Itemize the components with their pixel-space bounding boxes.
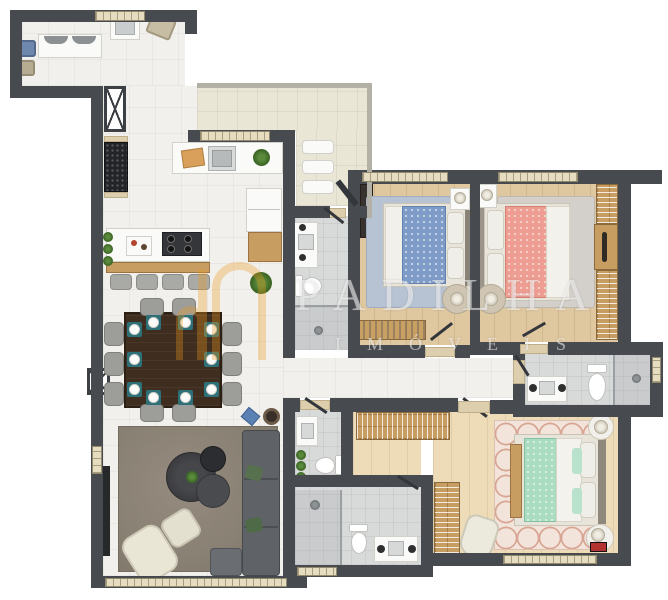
dining-chair-left-3: [104, 382, 124, 406]
floor-plan: PADILHA IMÓVEIS: [0, 0, 668, 600]
bedroom2-window: [498, 172, 578, 182]
hall-bench-2: [302, 160, 334, 174]
kitchen-shelf-plant-2: [103, 244, 113, 254]
kitchen-shelf-plant-1: [103, 232, 113, 242]
bath1-sink: [298, 234, 314, 250]
bath2-window: [652, 357, 661, 383]
wall-bath2-bottom: [513, 405, 663, 417]
wall-laundry-right: [185, 10, 197, 34]
bath2-accessory-2: [558, 384, 566, 392]
bed3-lamp-top: [594, 420, 608, 434]
bed2-pillow-1: [487, 210, 504, 250]
wc-plant-2: [296, 461, 306, 471]
watermark-subtitle: IMÓVEIS: [335, 334, 592, 355]
master-window: [503, 555, 597, 564]
cooktop-burner-1: [167, 235, 175, 243]
closet-wardrobe-top: [356, 412, 450, 440]
suitebath-sink: [388, 541, 404, 556]
wall-suitebath-right: [421, 475, 433, 577]
terrace-railing-right: [367, 83, 372, 218]
bedroom2-wardrobe-top: [596, 184, 618, 224]
wall-master-top-mid: [490, 400, 515, 414]
dining-chair-right-3: [222, 382, 242, 406]
coffee-table-mid: [196, 474, 230, 508]
bath2-toilet: [585, 364, 609, 404]
logo-arch-large: [212, 262, 266, 360]
plate: [148, 317, 159, 328]
tall-dark-cabinet: [104, 142, 128, 192]
master-door-sill: [458, 401, 490, 413]
suitebath-window: [297, 567, 337, 576]
suitebath-shower-glass: [340, 490, 342, 565]
kitchen-serving-tray: [126, 236, 152, 256]
suitebath-accessory-1: [377, 545, 385, 553]
hallway-floor: [283, 358, 513, 398]
kitchen-plant: [253, 149, 270, 166]
plate: [129, 384, 140, 395]
living-side-window: [92, 446, 102, 474]
dining-chair-top-1: [140, 298, 164, 316]
plate: [148, 392, 159, 403]
bath2-shower-glass: [613, 354, 615, 405]
bed3-foot-bench: [510, 444, 522, 518]
dining-chair-bottom-2: [172, 404, 196, 422]
bed3-lamp-bottom: [591, 528, 605, 542]
bed2-lamp-top: [481, 189, 493, 201]
bed3-pillow-2: [580, 482, 596, 518]
wall-laundry-bottom: [10, 86, 103, 98]
dining-chair-bottom-1: [140, 404, 164, 422]
bath1-shower-head: [314, 326, 323, 335]
plate: [129, 324, 140, 335]
suitebath-toilet: [348, 524, 370, 556]
watermark-title: PADILHA: [295, 268, 605, 321]
kitchen-cutting-board: [181, 148, 205, 169]
bar-stool-1: [110, 274, 132, 290]
tray-food-dark: [141, 244, 147, 250]
dining-chair-left-2: [104, 352, 124, 376]
logo-bar: [198, 270, 207, 360]
wall-hallway-bottom-a: [283, 398, 300, 412]
fridge-door-line: [248, 209, 280, 210]
decor-ring-object: [263, 408, 280, 425]
wall-wc-right: [341, 410, 353, 480]
wc-toilet: [313, 453, 343, 477]
ottoman: [210, 548, 242, 576]
bedroom2-dresser-handle: [602, 232, 607, 262]
coffee-table-plant: [186, 471, 198, 483]
wall-master-right: [618, 417, 631, 566]
coffee-table-small: [200, 446, 226, 472]
bedroom1-window: [362, 172, 448, 182]
bed1-lamp-top: [454, 192, 466, 204]
wc-plant-1: [296, 450, 306, 460]
laundry-window: [95, 11, 145, 21]
cooktop-burner-2: [184, 235, 192, 243]
bath1-accessory-2: [299, 254, 306, 261]
living-window-door: [105, 578, 287, 587]
wall-center-vertical-lower: [283, 398, 295, 577]
sofa-pillow-green-2: [245, 517, 263, 534]
bath2-shower-head: [632, 374, 641, 383]
kitchen-shelf-plant-3: [103, 256, 113, 266]
kitchen-window: [200, 131, 270, 141]
tall-cabinet-cap-bottom: [104, 192, 128, 198]
wall-left-main: [91, 86, 103, 588]
bed3-books-red: [590, 542, 607, 552]
tray-food-red: [131, 240, 137, 246]
terrace-floor-top: [197, 86, 367, 132]
laundry-sink-basin: [115, 20, 135, 35]
terrace-railing-top: [197, 83, 372, 88]
suitebath-shower-head: [310, 500, 320, 510]
kitchen-sink-basin: [212, 150, 232, 167]
sofa: [242, 430, 280, 576]
suitebath-accessory-2: [408, 545, 416, 553]
dining-chair-left-1: [104, 322, 124, 346]
wc-sink-basin: [301, 423, 314, 439]
bed3-blanket-mint: [524, 438, 558, 522]
hall-bench-1: [302, 140, 334, 154]
watermark-logo: [168, 252, 288, 364]
bath2-accessory-1: [529, 384, 537, 392]
closet-wardrobe-column: [434, 482, 460, 554]
wall-laundry-left: [10, 10, 22, 98]
duct-shaft-box: [104, 86, 126, 132]
plate: [206, 384, 217, 395]
bed3-pillow-1: [580, 442, 596, 478]
plate: [129, 354, 140, 365]
bed3-headboard: [598, 436, 606, 524]
fridge: [246, 188, 282, 232]
bath1-accessory-1: [299, 224, 306, 231]
plate: [180, 392, 191, 403]
bath2-sink: [539, 381, 555, 395]
bed1-pillow-1: [447, 212, 464, 244]
hall-bench-3: [302, 180, 334, 194]
wall-bedroom2-right: [618, 170, 631, 354]
bar-stool-2: [136, 274, 158, 290]
bed3-pillow-mint-2: [572, 488, 582, 514]
bed3-pillow-mint-1: [572, 448, 582, 474]
